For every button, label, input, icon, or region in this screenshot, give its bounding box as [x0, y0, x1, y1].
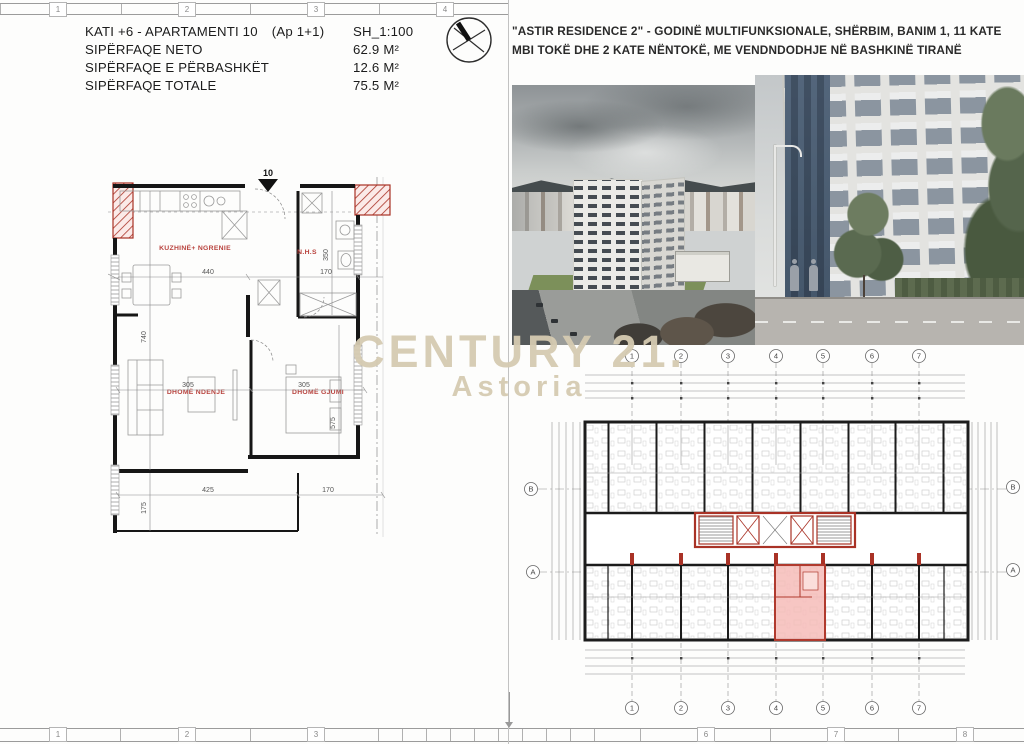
north-arrow-icon [444, 15, 494, 65]
grid-col-label: 7 [917, 352, 921, 361]
ruler-tick [121, 4, 122, 14]
grid-col-label: 5 [821, 704, 825, 713]
ruler-cell-3: 3 [307, 2, 325, 17]
ruler-cell-2: 2 [178, 2, 196, 17]
apartment-type: (Ap 1+1) [272, 24, 325, 39]
building-front-facade [573, 179, 643, 295]
info-row-net: SIPËRFAQE NETO 62.9 M² [85, 41, 440, 59]
dim-440: 440 [202, 269, 214, 276]
info-row-common: SIPËRFAQE E PËRBASHKËT 12.6 M² [85, 59, 440, 77]
dim-425: 425 [202, 487, 214, 494]
ruler-tick [570, 729, 571, 741]
unit-number: 10 [263, 168, 273, 178]
dim-350: 350 [323, 249, 330, 261]
grid-col-label: 3 [726, 352, 730, 361]
annex-building [675, 251, 730, 282]
dim-175: 175 [141, 502, 148, 514]
sheet-ruler-top: 1 2 3 4 [0, 3, 508, 15]
grid-col-label: 6 [870, 352, 874, 361]
area-common-label: SIPËRFAQE E PËRBASHKËT [85, 59, 353, 77]
drawing-scale: SH_1:100 [353, 23, 440, 41]
ruler-tick [522, 729, 523, 741]
info-row-total: SIPËRFAQE TOTALE 75.5 M² [85, 77, 440, 95]
ruler-tick [0, 4, 1, 14]
tree [954, 86, 1024, 297]
grid-col-label: 6 [870, 704, 874, 713]
sheet-ruler-bottom: 1 2 3 6 7 8 [0, 728, 1024, 742]
ruler-tick [770, 729, 771, 741]
furniture [120, 191, 356, 435]
car [551, 319, 558, 323]
render-photo-street [755, 75, 1024, 345]
ruler-tick [402, 729, 403, 741]
door-swings [251, 189, 324, 362]
street-lamp-arm [774, 145, 802, 157]
main-building-render [573, 179, 682, 293]
grid-col-label: 5 [821, 352, 825, 361]
ruler-tick [426, 729, 427, 741]
grid-col-label: 2 [679, 704, 683, 713]
pedestrian-figure [790, 265, 799, 291]
ruler-cell-3: 3 [307, 727, 325, 742]
ruler-cell-8: 8 [956, 727, 974, 742]
ruler-tick [498, 729, 499, 741]
dim-740: 740 [141, 331, 148, 343]
render-photo-aerial [512, 85, 755, 345]
area-total-label: SIPËRFAQE TOTALE [85, 77, 353, 95]
area-net-value: 62.9 M² [353, 41, 440, 59]
grid-bubbles-bottom: 1 2 3 4 5 6 7 [626, 702, 926, 715]
road-marking [755, 321, 1024, 323]
watermark-agency: Astoria [404, 371, 634, 404]
dim-170: 170 [320, 269, 332, 276]
dim-575: 575 [330, 417, 337, 429]
ruler-cell-7: 7 [827, 727, 845, 742]
area-total-value: 75.5 M² [353, 77, 440, 95]
drawing-sheet: 1 2 3 4 1 2 3 6 7 8 KATI +6 - APARTAMENT… [0, 0, 1024, 744]
grid-row-label: A [530, 568, 535, 577]
ruler-tick [250, 4, 251, 14]
pedestrian-figure [809, 265, 818, 291]
ruler-cell-1: 1 [49, 2, 67, 17]
ruler-tick [120, 729, 121, 741]
grid-row-label: B [1010, 483, 1015, 492]
apartment-title: KATI +6 - APARTAMENTI 10(Ap 1+1) [85, 23, 353, 41]
grid-col-label: 3 [726, 704, 730, 713]
ruler-tick [450, 729, 451, 741]
room-label-living: DHOMË NDENJE [167, 388, 226, 396]
room-label-bedroom: DHOMË GJUMI [292, 388, 344, 396]
ruler-cell-6: 6 [697, 727, 715, 742]
ruler-tick [379, 4, 380, 14]
apartment-title-main: KATI +6 - APARTAMENTI 10 [85, 24, 258, 39]
dim-305b: 305 [298, 382, 310, 389]
room-label-bathroom: N.H.S [297, 249, 317, 256]
area-common-value: 12.6 M² [353, 59, 440, 77]
car [536, 303, 543, 307]
ruler-tick [546, 729, 547, 741]
ruler-cell-2: 2 [178, 727, 196, 742]
project-title: "ASTIR RESIDENCE 2" - GODINË MULTIFUNKSI… [512, 22, 1018, 60]
north-arrow-svg [444, 15, 494, 65]
ruler-tick [640, 729, 641, 741]
highlighted-unit [775, 565, 825, 640]
grid-col-label: 4 [774, 352, 778, 361]
ruler-cell-1: 1 [49, 727, 67, 742]
grid-col-label: 7 [917, 704, 921, 713]
room-label-kitchen: KUZHINË+ NGRENIE [159, 244, 231, 252]
apartment-plan-drawing: 10 [108, 165, 408, 620]
ruler-tick [250, 729, 251, 741]
apartment-info-block: KATI +6 - APARTAMENTI 10(Ap 1+1) SH_1:10… [85, 23, 440, 95]
core-stairs-elevators [695, 513, 855, 547]
ruler-tick [594, 729, 595, 741]
reference-arrow [509, 692, 510, 726]
entry-arrow-icon [258, 179, 278, 192]
grid-col-label: 4 [774, 704, 778, 713]
street-lamp [774, 145, 776, 285]
grid-row-label: B [528, 485, 533, 494]
ruler-tick [474, 729, 475, 741]
info-row-title: KATI +6 - APARTAMENTI 10(Ap 1+1) SH_1:10… [85, 23, 440, 41]
ruler-tick [898, 729, 899, 741]
dim-305: 305 [182, 382, 194, 389]
area-net-label: SIPËRFAQE NETO [85, 41, 353, 59]
dim-170b: 170 [322, 487, 334, 494]
ruler-tick [378, 729, 379, 741]
grid-col-label: 1 [630, 704, 634, 713]
grid-row-label: A [1010, 566, 1015, 575]
unit-number-marker: 10 [258, 168, 278, 192]
